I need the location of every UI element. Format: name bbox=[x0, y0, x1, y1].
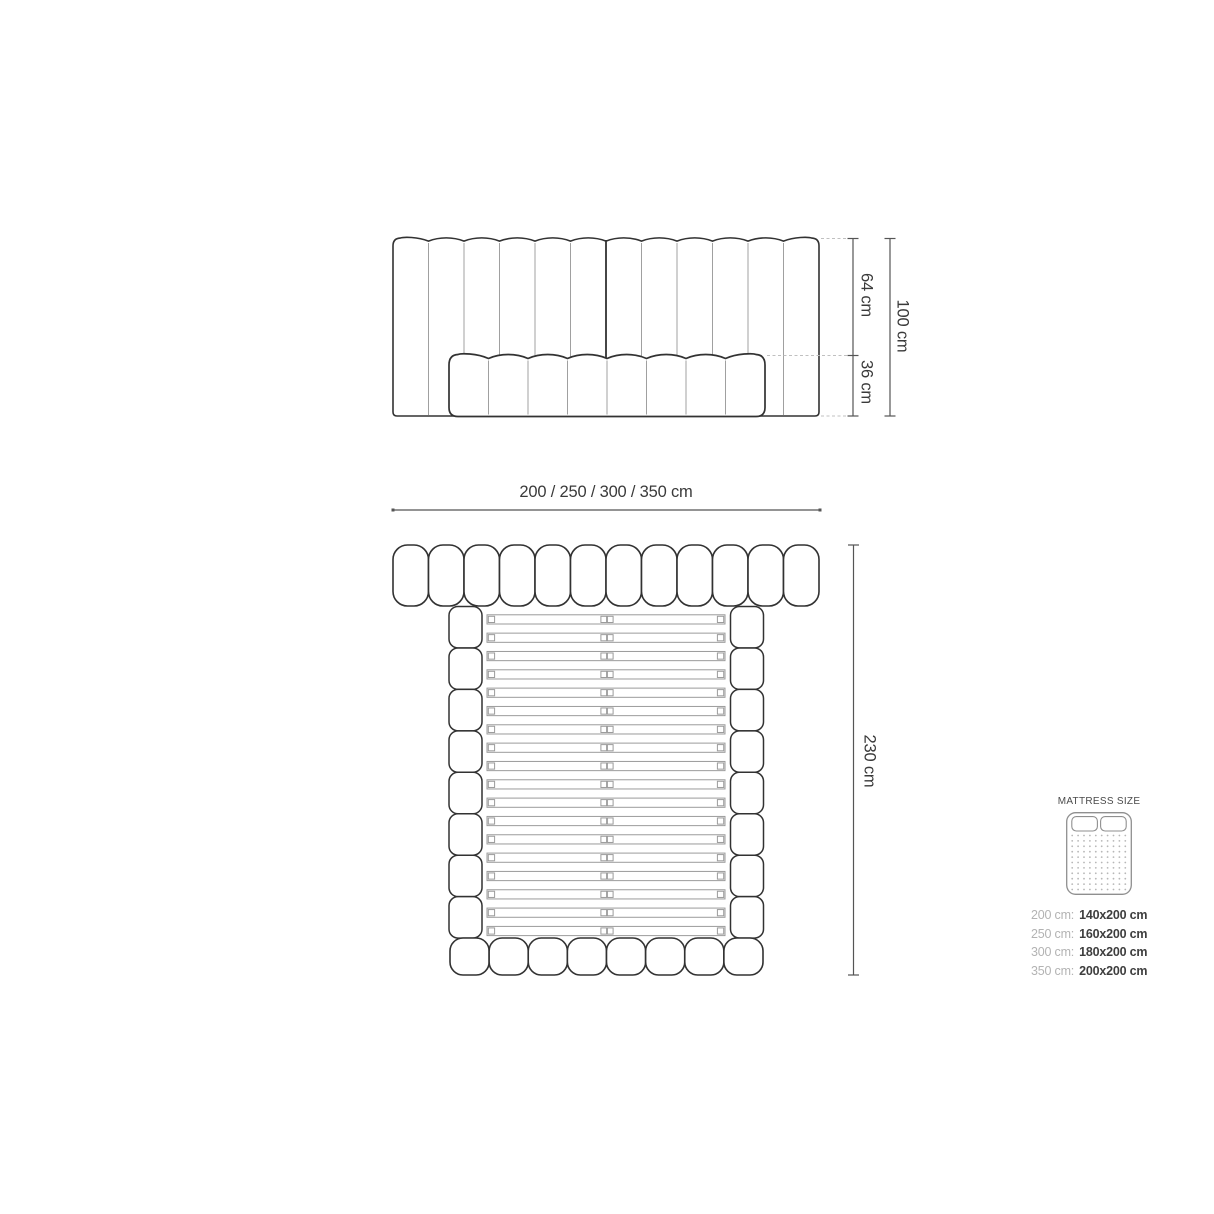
right-rail-segment bbox=[731, 607, 764, 648]
headboard-segment bbox=[748, 545, 784, 606]
pillow-right-icon bbox=[1101, 817, 1127, 831]
right-rail-segment bbox=[731, 897, 764, 938]
slat-end-cap bbox=[488, 635, 494, 641]
slat-center-holder bbox=[607, 763, 613, 769]
slat-end-cap bbox=[717, 671, 723, 677]
slat-end-cap bbox=[717, 745, 723, 751]
slat-center-holder bbox=[607, 616, 613, 622]
slat-end-cap bbox=[488, 781, 494, 787]
slat-center-holder bbox=[607, 708, 613, 714]
right-rail-segment bbox=[731, 772, 764, 813]
slat-end-cap bbox=[488, 726, 494, 732]
mattress-size-value: 200x200 cm bbox=[1079, 964, 1147, 978]
footboard-segment bbox=[724, 938, 763, 975]
slat-end-cap bbox=[717, 781, 723, 787]
slat-end-cap bbox=[717, 928, 723, 934]
slat-center-holder bbox=[601, 800, 607, 806]
slat-end-cap bbox=[717, 653, 723, 659]
slat-end-cap bbox=[488, 928, 494, 934]
slat-end-cap bbox=[488, 616, 494, 622]
left-rail-segment bbox=[449, 855, 482, 896]
headboard-segment bbox=[784, 545, 820, 606]
right-rail-segment bbox=[731, 648, 764, 689]
slat-end-cap bbox=[488, 763, 494, 769]
slat-center-holder bbox=[607, 873, 613, 879]
slat-center-holder bbox=[607, 855, 613, 861]
footboard-top-view bbox=[450, 938, 763, 975]
slat-end-cap bbox=[488, 836, 494, 842]
right-rail-segment bbox=[731, 689, 764, 730]
slat-center-holder bbox=[601, 745, 607, 751]
footboard-segment bbox=[567, 938, 606, 975]
slat-center-holder bbox=[607, 818, 613, 824]
slat-end-cap bbox=[488, 671, 494, 677]
mattress-size-value: 180x200 cm bbox=[1079, 945, 1147, 959]
slat-end-cap bbox=[717, 855, 723, 861]
mattress-size-row: 350 cm: 200x200 cm bbox=[1031, 962, 1147, 981]
slat-end-cap bbox=[717, 873, 723, 879]
slat-end-cap bbox=[488, 653, 494, 659]
slat-end-cap bbox=[488, 745, 494, 751]
headboard-segment bbox=[713, 545, 749, 606]
bed-dimension-sheet: 64 cm 36 cm 100 cm 200 / 250 / 300 / 350… bbox=[0, 0, 1214, 1214]
mattress-dots-pattern bbox=[1071, 835, 1126, 891]
slat-center-holder bbox=[601, 635, 607, 641]
dimension-label-widths: 200 / 250 / 300 / 350 cm bbox=[519, 484, 692, 501]
mattress-size-value: 160x200 cm bbox=[1079, 927, 1147, 941]
headboard-segment bbox=[393, 545, 429, 606]
slat-center-holder bbox=[601, 873, 607, 879]
headboard-segment bbox=[464, 545, 500, 606]
slat-center-holder bbox=[607, 671, 613, 677]
slat-end-cap bbox=[488, 818, 494, 824]
slat-end-cap bbox=[488, 891, 494, 897]
headboard-segment bbox=[606, 545, 642, 606]
slat-end-cap bbox=[717, 763, 723, 769]
slats bbox=[487, 615, 725, 936]
dimension-label-lower-height: 36 cm bbox=[858, 360, 875, 404]
slat-center-holder bbox=[607, 891, 613, 897]
left-rail-segment bbox=[449, 772, 482, 813]
mattress-size-value: 140x200 cm bbox=[1079, 908, 1147, 922]
left-rail-segment bbox=[449, 648, 482, 689]
slat-center-holder bbox=[607, 726, 613, 732]
slat-end-cap bbox=[717, 818, 723, 824]
slat-end-cap bbox=[717, 726, 723, 732]
slat-center-holder bbox=[607, 800, 613, 806]
slat-center-holder bbox=[607, 836, 613, 842]
left-rail-segment bbox=[449, 814, 482, 855]
slat-center-holder bbox=[601, 616, 607, 622]
slat-end-cap bbox=[488, 873, 494, 879]
right-rail-segment bbox=[731, 855, 764, 896]
left-rail-segment bbox=[449, 731, 482, 772]
right-rail-segment bbox=[731, 814, 764, 855]
slat-end-cap bbox=[717, 910, 723, 916]
footboard-segment bbox=[685, 938, 724, 975]
slat-center-holder bbox=[601, 653, 607, 659]
footboard-segment bbox=[489, 938, 528, 975]
slat-center-holder bbox=[607, 781, 613, 787]
slat-center-holder bbox=[601, 708, 607, 714]
headboard-segment bbox=[571, 545, 607, 606]
slat-end-cap bbox=[488, 910, 494, 916]
slat-end-cap bbox=[717, 891, 723, 897]
slat-end-cap bbox=[488, 708, 494, 714]
mattress-size-row: 300 cm: 180x200 cm bbox=[1031, 943, 1147, 962]
headboard-front-view bbox=[393, 237, 819, 416]
left-rail-segment bbox=[449, 607, 482, 648]
slat-end-cap bbox=[717, 690, 723, 696]
slat-center-holder bbox=[601, 836, 607, 842]
headboard-top-view bbox=[393, 545, 819, 606]
mattress-size-row: 250 cm: 160x200 cm bbox=[1031, 925, 1147, 944]
pillow-left-icon bbox=[1072, 817, 1098, 831]
slat-end-cap bbox=[717, 836, 723, 842]
slat-center-holder bbox=[607, 635, 613, 641]
mattress-outline bbox=[1067, 813, 1132, 895]
slat-end-cap bbox=[488, 800, 494, 806]
bed-technical-drawing bbox=[0, 0, 1214, 1214]
slat-center-holder bbox=[601, 781, 607, 787]
left-rail-segment bbox=[449, 897, 482, 938]
top-view-width-dimension bbox=[392, 509, 822, 512]
slat-end-cap bbox=[488, 690, 494, 696]
slat-center-holder bbox=[607, 928, 613, 934]
slat-center-holder bbox=[601, 726, 607, 732]
right-rail-segment bbox=[731, 731, 764, 772]
bed-width-label: 350 cm: bbox=[1031, 964, 1074, 978]
footboard-segment bbox=[450, 938, 489, 975]
slat-center-holder bbox=[601, 891, 607, 897]
slat-center-holder bbox=[601, 818, 607, 824]
slat-end-cap bbox=[717, 635, 723, 641]
top-view-length-dimension bbox=[848, 545, 859, 975]
slat-end-cap bbox=[717, 800, 723, 806]
headboard-segment bbox=[642, 545, 678, 606]
footboard-segment bbox=[646, 938, 685, 975]
slat-end-cap bbox=[488, 855, 494, 861]
left-rail-segment bbox=[449, 689, 482, 730]
dimension-label-length: 230 cm bbox=[861, 735, 878, 788]
headboard-segment bbox=[500, 545, 536, 606]
headboard-segment bbox=[429, 545, 465, 606]
bed-width-label: 250 cm: bbox=[1031, 927, 1074, 941]
slat-center-holder bbox=[601, 671, 607, 677]
slat-center-holder bbox=[601, 690, 607, 696]
slat-center-holder bbox=[607, 910, 613, 916]
headboard-segment bbox=[535, 545, 571, 606]
bed-width-label: 200 cm: bbox=[1031, 908, 1074, 922]
bed-width-label: 300 cm: bbox=[1031, 945, 1074, 959]
slat-center-holder bbox=[601, 910, 607, 916]
slat-end-cap bbox=[717, 708, 723, 714]
slat-center-holder bbox=[601, 928, 607, 934]
mattress-size-title: MATTRESS SIZE bbox=[1058, 797, 1141, 807]
slat-center-holder bbox=[607, 690, 613, 696]
slat-center-holder bbox=[601, 763, 607, 769]
footboard-segment bbox=[528, 938, 567, 975]
slat-center-holder bbox=[607, 653, 613, 659]
footboard-segment bbox=[607, 938, 646, 975]
headboard-segment bbox=[677, 545, 713, 606]
mattress-size-row: 200 cm: 140x200 cm bbox=[1031, 906, 1147, 925]
slat-center-holder bbox=[601, 855, 607, 861]
slat-center-holder bbox=[607, 745, 613, 751]
dimension-label-total-height: 100 cm bbox=[894, 300, 911, 353]
slat-end-cap bbox=[717, 616, 723, 622]
dimension-label-upper-height: 64 cm bbox=[858, 273, 875, 317]
mattress-size-table: 200 cm: 140x200 cm 250 cm: 160x200 cm 30… bbox=[1031, 906, 1147, 980]
mattress-icon bbox=[1066, 812, 1132, 895]
